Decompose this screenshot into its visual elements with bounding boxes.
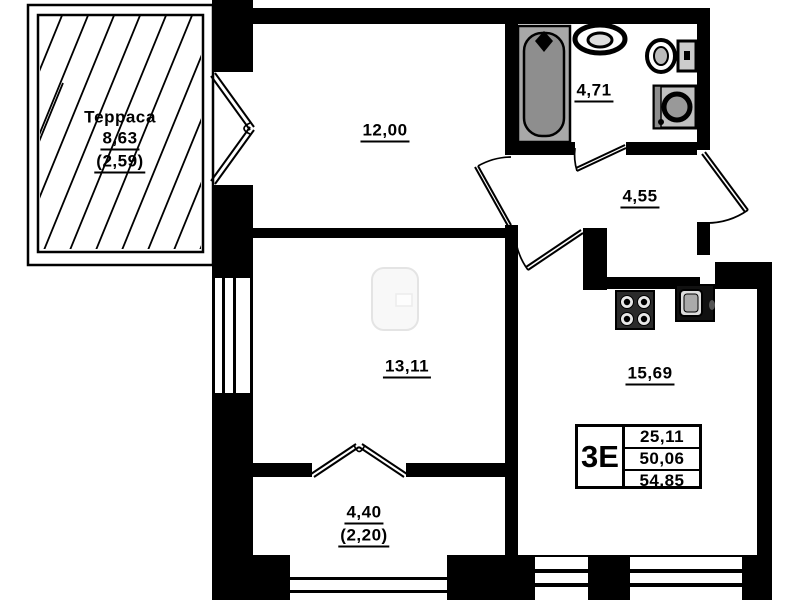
kitchen-area-label: 15,69	[625, 365, 674, 386]
faint-furniture-icon	[372, 268, 418, 330]
living-area-value: 25,11	[625, 427, 699, 449]
kitchen-sink-icon	[676, 285, 715, 321]
toilet-icon	[647, 40, 696, 72]
terrace-area-label: 8,63	[100, 130, 139, 151]
window-kitchen-right-icon	[630, 557, 742, 600]
bathtub-icon	[518, 26, 570, 142]
room12-area-label: 12,00	[360, 122, 409, 143]
apartment-type-label: 3Е	[578, 427, 625, 486]
bathroom-door-icon	[575, 145, 626, 171]
terrace-area2-label: (2,59)	[94, 153, 145, 174]
balcony-area2-label: (2,20)	[338, 527, 389, 548]
terrace-hatch-pattern	[0, 13, 323, 320]
hallway-area-label: 4,55	[620, 188, 659, 209]
floor-plan: Терраса 8,63 (2,59) 12,00 4,71 4,55 13,1…	[0, 0, 799, 600]
stove-icon	[616, 291, 654, 329]
bathroom-sink-icon	[575, 25, 625, 53]
apartment-info-table: 3Е 25,11 50,06 54,85	[575, 424, 702, 489]
bathroom-area-label: 4,71	[574, 82, 613, 103]
floor-plan-geometry	[0, 0, 799, 600]
washing-machine-icon	[654, 86, 696, 128]
window-kitchen-left-icon	[535, 557, 588, 600]
balcony-area-label: 4,40	[344, 504, 383, 525]
entry-door-icon	[702, 152, 748, 223]
terrace-french-door-icon	[211, 73, 254, 184]
total-area-value: 54,85	[625, 471, 699, 491]
room12-door-icon	[475, 157, 511, 226]
apartment-areas: 25,11 50,06 54,85	[625, 427, 699, 486]
balcony-french-door-icon	[311, 444, 407, 477]
terrace-name-label: Терраса	[84, 109, 156, 126]
area-value: 50,06	[625, 449, 699, 471]
room13-area-label: 13,11	[383, 358, 431, 379]
window-left-icon	[212, 278, 253, 393]
window-balcony-icon	[290, 577, 447, 593]
room13-door-icon	[515, 230, 583, 270]
